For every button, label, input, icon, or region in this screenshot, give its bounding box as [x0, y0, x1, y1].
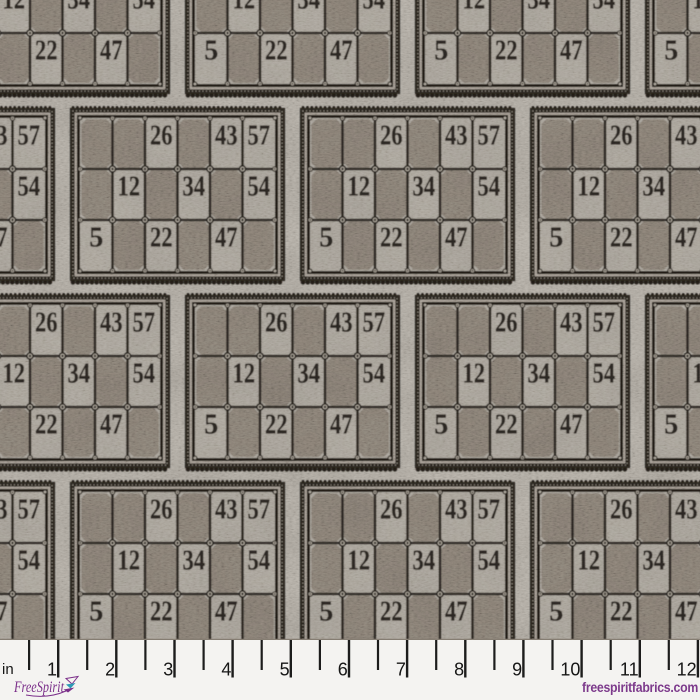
svg-text:1: 1	[47, 659, 57, 679]
svg-text:11: 11	[620, 659, 639, 679]
svg-text:8: 8	[454, 659, 464, 679]
svg-text:12: 12	[677, 659, 697, 679]
svg-text:FreeSpirit: FreeSpirit	[13, 679, 64, 696]
svg-text:10: 10	[560, 659, 580, 679]
svg-text:3: 3	[163, 659, 173, 679]
svg-text:2: 2	[105, 659, 115, 679]
svg-text:6: 6	[338, 659, 348, 679]
svg-text:4: 4	[221, 659, 231, 679]
svg-text:9: 9	[512, 659, 522, 679]
svg-text:freespiritfabrics.com: freespiritfabrics.com	[582, 680, 698, 695]
svg-text:7: 7	[396, 659, 406, 679]
svg-text:in: in	[2, 661, 14, 678]
svg-text:5: 5	[280, 659, 290, 679]
